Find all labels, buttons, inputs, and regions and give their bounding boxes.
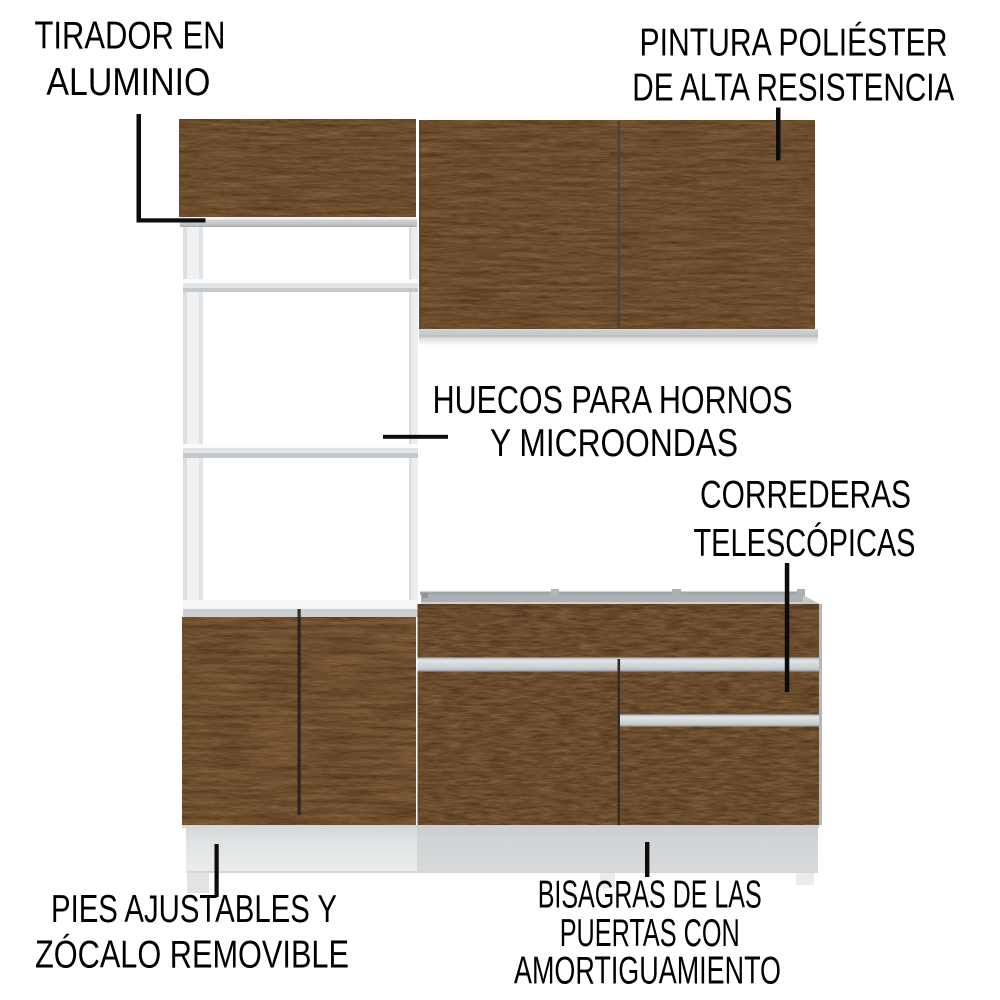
- svg-text:AMORTIGUAMIENTO: AMORTIGUAMIENTO: [514, 949, 781, 992]
- svg-text:PIES AJUSTABLES Y: PIES AJUSTABLES Y: [51, 888, 337, 931]
- svg-text:TIRADOR EN: TIRADOR EN: [35, 15, 226, 58]
- svg-text:CORREDERAS: CORREDERAS: [700, 473, 911, 516]
- svg-text:TELESCÓPICAS: TELESCÓPICAS: [694, 522, 916, 565]
- svg-text:DE ALTA RESISTENCIA: DE ALTA RESISTENCIA: [632, 66, 954, 109]
- svg-text:BISAGRAS DE LAS: BISAGRAS DE LAS: [538, 873, 762, 916]
- svg-text:Y MICROONDAS: Y MICROONDAS: [490, 422, 738, 465]
- svg-text:ALUMINIO: ALUMINIO: [46, 61, 210, 104]
- svg-text:ZÓCALO REMOVIBLE: ZÓCALO REMOVIBLE: [35, 934, 349, 977]
- svg-text:HUECOS PARA HORNOS: HUECOS PARA HORNOS: [433, 379, 793, 422]
- svg-text:PINTURA POLIÉSTER: PINTURA POLIÉSTER: [640, 22, 948, 65]
